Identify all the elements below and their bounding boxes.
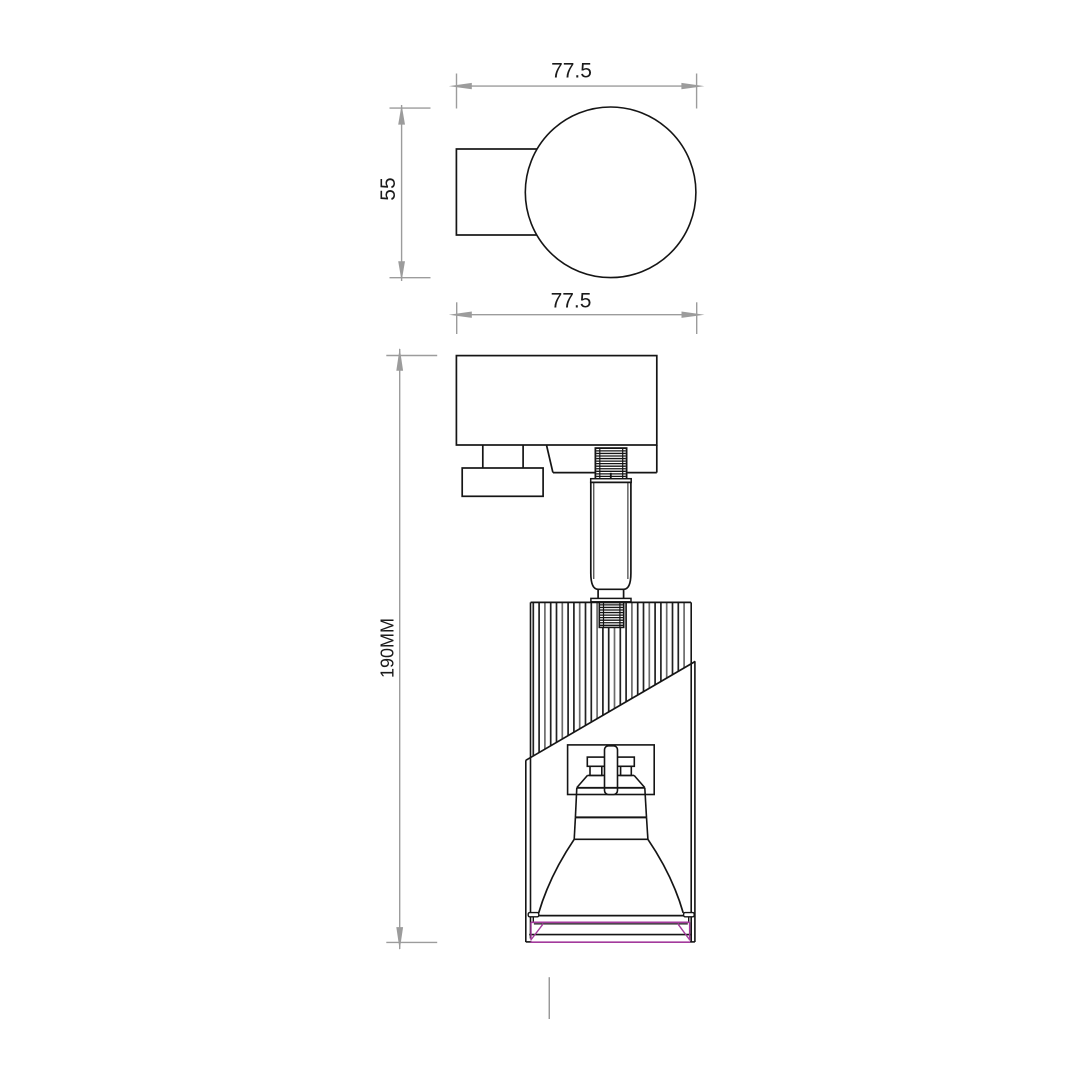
svg-text:77.5: 77.5 [551,289,592,312]
svg-text:55: 55 [377,177,400,200]
svg-text:77.5: 77.5 [551,60,592,83]
svg-text:190MM: 190MM [378,618,398,678]
